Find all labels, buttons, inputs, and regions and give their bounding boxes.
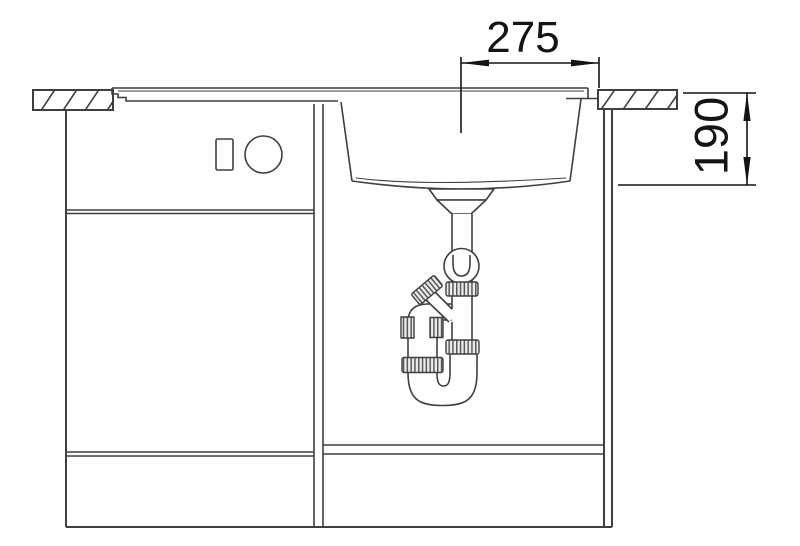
- left-plinth-divider: [66, 452, 314, 456]
- technical-drawing: 275 190: [0, 0, 800, 546]
- drain-flange: [429, 189, 494, 200]
- drainer-left-step: [112, 88, 338, 101]
- basin-right-wall: [570, 99, 581, 181]
- trap-right-leg: [450, 354, 477, 373]
- basin-left-wall: [341, 102, 352, 181]
- dishwasher-controls: [216, 136, 282, 173]
- countertop-left-block: [33, 90, 113, 110]
- dimension-width-label: 275: [486, 13, 559, 62]
- drain-funnel: [437, 200, 486, 214]
- sink-rim-drainer: [112, 88, 598, 101]
- swivel-wedge-right: [430, 318, 443, 338]
- control-square: [216, 139, 233, 170]
- countertop-left-section: [33, 88, 122, 112]
- arrow-right-icon: [571, 60, 599, 67]
- cabinet-right-panel: [604, 109, 612, 527]
- coupling-nut-lower: [402, 358, 443, 373]
- ball-joint-ring: [444, 249, 479, 284]
- dimension-depth-label: 190: [685, 97, 738, 175]
- coupling-nut-upper: [446, 282, 478, 296]
- arrow-up-icon: [743, 93, 750, 121]
- arrow-down-icon: [743, 157, 750, 185]
- control-knob: [245, 136, 282, 173]
- cabinet-partition: [314, 104, 323, 527]
- right-cabinet-floor: [323, 445, 604, 454]
- left-door-seam: [66, 210, 314, 214]
- main-pipe-fill: [452, 296, 472, 340]
- trap-u-outer: [408, 373, 477, 406]
- countertop-right-section: [598, 88, 682, 111]
- rim-right-step: [566, 88, 598, 99]
- cabinet: [66, 104, 612, 527]
- basin-bottom-inner: [356, 178, 566, 183]
- coupling-nut-middle: [446, 340, 479, 354]
- swivel-wedge-left: [401, 317, 414, 338]
- drain-assembly: [401, 189, 494, 406]
- sink-installation-diagram: 275 190: [0, 0, 800, 546]
- arrow-left-icon: [461, 60, 489, 67]
- countertop-right-block: [598, 90, 677, 109]
- trap-u-inner: [437, 373, 450, 386]
